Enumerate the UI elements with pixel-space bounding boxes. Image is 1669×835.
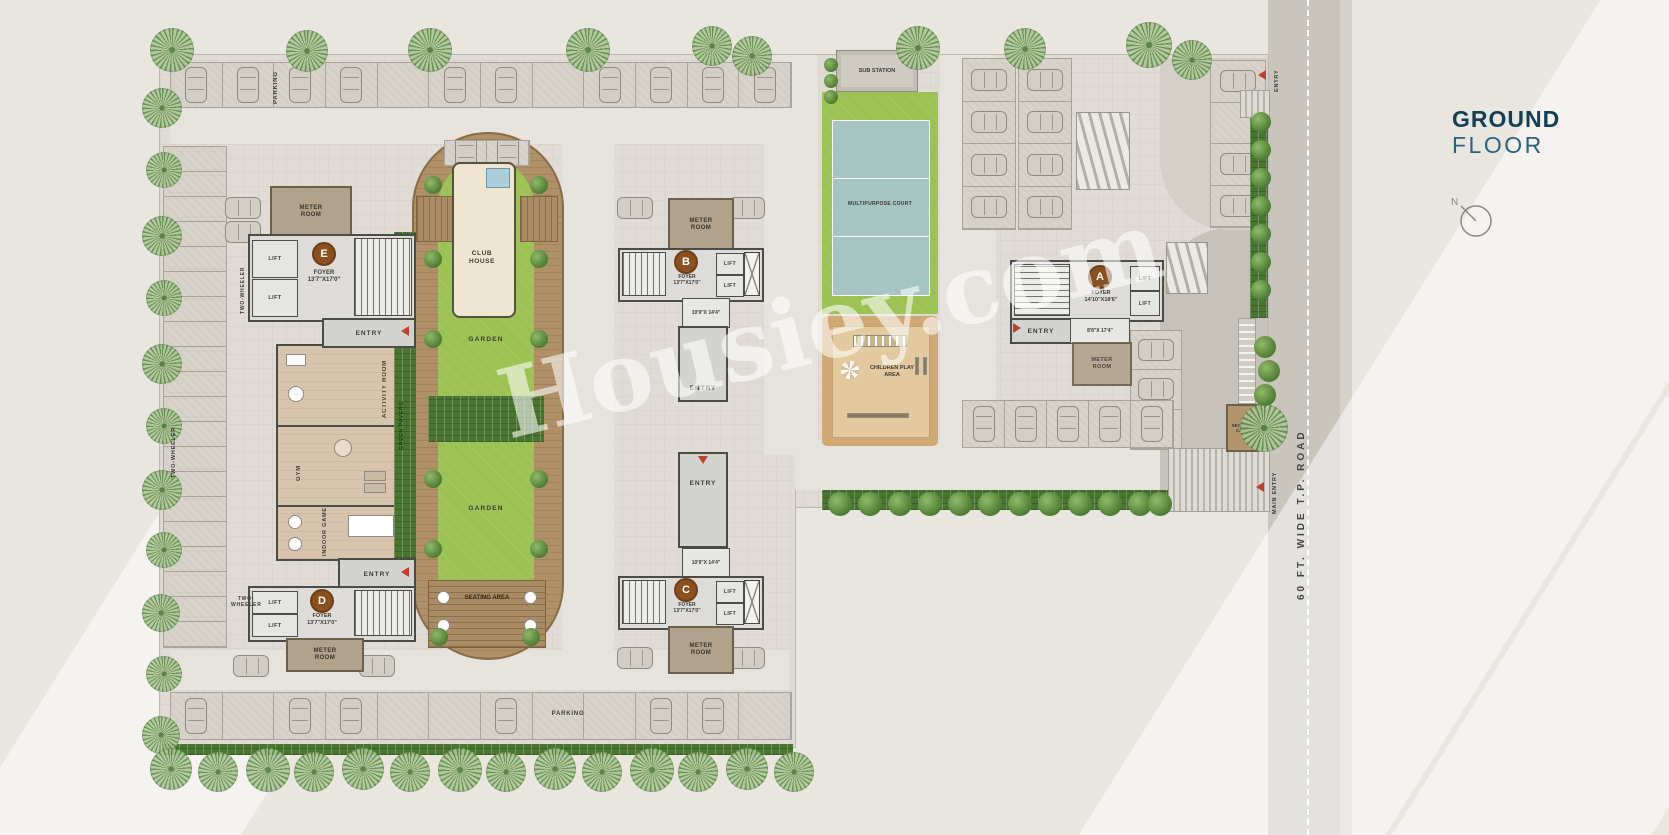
tree-icon xyxy=(1004,28,1046,70)
car-icon xyxy=(444,67,466,103)
tower-c-duct xyxy=(744,580,760,624)
page-title-line1: GROUND xyxy=(1452,106,1560,133)
indoor-game-label: INDOOR GAME xyxy=(322,510,328,556)
club-house: CLUB HOUSE xyxy=(452,162,516,318)
tower-d-stairs xyxy=(354,590,412,636)
parking-stall xyxy=(1089,401,1131,447)
bush-icon xyxy=(424,470,442,488)
garden-label: GARDEN xyxy=(468,336,503,343)
tree-icon xyxy=(408,28,452,72)
bush-icon xyxy=(1098,492,1122,516)
bush-icon xyxy=(824,74,838,88)
ramp-hatch xyxy=(1076,112,1130,190)
ramp-hatch xyxy=(1166,242,1208,294)
tree-icon xyxy=(582,752,622,792)
car-icon xyxy=(702,698,724,734)
car-icon xyxy=(971,111,1007,133)
car-icon xyxy=(971,69,1007,91)
tower-e-foyer-label: FOYER13'7"X17'0" xyxy=(286,270,362,284)
parking-stall xyxy=(1019,144,1071,187)
car-icon xyxy=(1057,406,1079,442)
car-icon xyxy=(1027,69,1063,91)
parking-label-top: PARKING xyxy=(273,64,279,104)
tree-icon xyxy=(774,752,814,792)
bush-icon xyxy=(1068,492,1092,516)
parking-stall xyxy=(963,144,1015,187)
car-icon xyxy=(1027,154,1063,176)
parking-stall xyxy=(1047,401,1089,447)
bush-icon xyxy=(424,540,442,558)
road-165-strip xyxy=(562,108,614,690)
two-wheeler-label: TWO-WHEELER xyxy=(240,250,246,314)
car-icon xyxy=(495,698,517,734)
tower-b-badge: B xyxy=(676,252,696,272)
tree-icon xyxy=(198,752,238,792)
parking-stall xyxy=(1019,102,1071,145)
seating-area-label: SEATING AREA xyxy=(463,595,511,602)
tree-icon xyxy=(142,216,182,256)
bush-icon xyxy=(828,492,852,516)
car-icon xyxy=(289,698,311,734)
parking-stall xyxy=(164,572,226,597)
tower-c-core: C FOYER13'7"X17'0" LIFT LIFT xyxy=(618,576,764,630)
parking-stall xyxy=(164,197,226,222)
tower-c-badge: C xyxy=(676,580,696,600)
parking-stall xyxy=(1131,331,1181,370)
pool-table-icon xyxy=(348,515,394,537)
gym-equipment-icon xyxy=(334,439,352,457)
entry-top-label: ENTRY xyxy=(1274,58,1280,92)
bush-icon xyxy=(1254,336,1276,358)
garden-label: GARDEN xyxy=(468,505,503,512)
bush-icon xyxy=(424,250,442,268)
parking-column xyxy=(1018,58,1072,230)
tower-a-lift-2: LIFT xyxy=(1130,291,1160,316)
parking-stall xyxy=(963,187,1015,230)
parking-row xyxy=(962,400,1174,448)
bush-icon xyxy=(1251,252,1271,272)
tower-d-badge: D xyxy=(312,591,332,611)
tower-a-stairs xyxy=(1014,264,1070,316)
parking-stall xyxy=(326,63,378,107)
tree-icon xyxy=(286,30,328,72)
table-icon xyxy=(437,591,450,604)
tree-icon xyxy=(146,152,182,188)
car-icon xyxy=(1141,406,1163,442)
bush-icon xyxy=(1038,492,1062,516)
tree-icon xyxy=(142,344,182,384)
bush-icon xyxy=(1251,168,1271,188)
bush-icon xyxy=(824,58,838,72)
tree-icon xyxy=(1172,40,1212,80)
car-icon xyxy=(1027,111,1063,133)
tower-e-meter-room: METER ROOM xyxy=(270,186,352,238)
tower-e-badge: E xyxy=(314,244,334,264)
main-entry-apron xyxy=(1168,448,1270,512)
tower-d-meter-room: METER ROOM xyxy=(286,638,364,672)
parking-stall xyxy=(481,63,533,107)
green-pavers-label: GREEN PAVERS xyxy=(399,370,405,450)
parking-stall xyxy=(688,693,740,739)
tree-icon xyxy=(732,36,772,76)
bush-icon xyxy=(1251,196,1271,216)
indoor-game-room: INDOOR GAME xyxy=(276,505,400,561)
ground-floor-site-plan: 60 FT. WIDE T.P. ROAD PARKING DRIVE-WAY … xyxy=(0,0,1669,835)
tree-icon xyxy=(146,532,182,568)
two-wheeler-label: TWO-WHEELER xyxy=(171,398,177,478)
tower-b-lift-1: LIFT xyxy=(716,253,744,275)
bush-icon xyxy=(1008,492,1032,516)
parking-stall xyxy=(429,693,481,739)
activity-room-label: ACTIVITY ROOM xyxy=(382,354,388,418)
tower-a-room: 8'8"X 17'4" xyxy=(1070,318,1130,344)
tower-e-lift-2: LIFT xyxy=(252,279,298,317)
parking-stall xyxy=(636,693,688,739)
tower-a-core: A FOYER14'10"X18'6" LIFT LIFT xyxy=(1010,260,1164,322)
children-play-label: CHILDREN PLAY AREA xyxy=(865,365,919,378)
car-icon xyxy=(340,67,362,103)
main-entry-label: MAIN ENTRY xyxy=(1272,462,1278,514)
club-house-deck xyxy=(416,196,454,242)
bush-icon xyxy=(424,330,442,348)
parking-stall xyxy=(688,63,740,107)
tower-b-core: B FOYER13'7"X17'0" LIFT LIFT xyxy=(618,248,764,302)
parking-label-bottom: PARKING xyxy=(552,711,585,717)
play-equipment-icon xyxy=(915,357,919,375)
parking-stall xyxy=(739,693,791,739)
car-icon xyxy=(650,698,672,734)
car-icon xyxy=(185,698,207,734)
table-icon xyxy=(288,386,304,402)
parking-stall xyxy=(533,63,585,107)
bush-icon xyxy=(824,90,838,104)
tower-b-lift-2: LIFT xyxy=(716,275,744,297)
tower-d-core: LIFT LIFT D FOYER13'7"X17'0" xyxy=(248,586,416,642)
bush-icon xyxy=(530,540,548,558)
parking-row-top xyxy=(170,62,792,108)
compass-north-label: N xyxy=(1451,197,1458,208)
tower-a-meter-room: METER ROOM xyxy=(1072,342,1132,386)
tree-icon xyxy=(246,748,290,792)
bush-icon xyxy=(948,492,972,516)
tree-icon xyxy=(486,752,526,792)
play-equipment-icon xyxy=(923,357,927,375)
tower-c-entry: ENTRY xyxy=(678,452,728,548)
play-equipment-icon xyxy=(853,335,907,347)
parking-stall xyxy=(164,322,226,347)
parking-stall xyxy=(326,693,378,739)
car-icon xyxy=(1027,196,1063,218)
tree-icon xyxy=(390,752,430,792)
tree-icon xyxy=(896,26,940,70)
club-house-label: CLUB HOUSE xyxy=(460,250,504,266)
entry-arrow-icon xyxy=(1013,323,1021,333)
multipurpose-court: MULTIPURPOSE COURT xyxy=(832,120,930,296)
club-house-deck xyxy=(520,196,558,242)
bush-icon xyxy=(424,176,442,194)
main-entry-arrow-icon xyxy=(1256,482,1264,492)
activity-room: ACTIVITY ROOM xyxy=(276,344,398,429)
parking-stall xyxy=(636,63,688,107)
tree-icon xyxy=(146,280,182,316)
tower-e-stairs xyxy=(354,238,412,316)
tower-c-lift-1: LIFT xyxy=(716,581,744,603)
bush-icon xyxy=(530,470,548,488)
bush-icon xyxy=(978,492,1002,516)
car-icon xyxy=(1099,406,1121,442)
car-icon xyxy=(1138,378,1174,400)
bush-icon xyxy=(1254,384,1276,406)
parking-stall xyxy=(1005,401,1047,447)
tower-c-foyer-label: FOYER13'7"X17'0" xyxy=(660,602,714,614)
bush-icon xyxy=(918,492,942,516)
entry-arrow-icon xyxy=(401,567,409,577)
car-icon xyxy=(650,67,672,103)
parking-column xyxy=(962,58,1016,230)
road-16-left-strip xyxy=(764,55,818,455)
tree-icon xyxy=(726,748,768,790)
compass-icon: N xyxy=(1448,192,1498,242)
parking-stall xyxy=(274,693,326,739)
tree-icon xyxy=(294,752,334,792)
bush-icon xyxy=(530,330,548,348)
bush-icon xyxy=(888,492,912,516)
tree-icon xyxy=(142,88,182,128)
car-icon xyxy=(1220,70,1256,92)
tree-icon xyxy=(534,748,576,790)
tree-icon xyxy=(630,748,674,792)
tower-b-room: 10'9"X 14'4" xyxy=(682,298,730,328)
tree-icon xyxy=(566,28,610,72)
tree-icon xyxy=(142,594,180,632)
bush-icon xyxy=(430,628,448,646)
tree-icon xyxy=(692,26,732,66)
parking-row-bottom xyxy=(170,692,792,740)
car-icon xyxy=(237,67,259,103)
tower-a-foyer-label: FOYER14'10"X18'6" xyxy=(1070,290,1132,303)
bush-icon xyxy=(1251,112,1271,132)
seesaw-icon xyxy=(847,413,909,418)
car-icon xyxy=(971,154,1007,176)
table-icon xyxy=(288,515,302,529)
car-icon xyxy=(185,67,207,103)
page-title-line2: FLOOR xyxy=(1452,132,1544,159)
tp-road-label: 60 FT. WIDE T.P. ROAD xyxy=(1296,240,1307,600)
car-icon xyxy=(495,67,517,103)
tower-c-meter-room: METER ROOM xyxy=(668,626,734,674)
tower-c-lift-2: LIFT xyxy=(716,603,744,625)
parking-stall xyxy=(378,693,430,739)
tower-b-entry: ENTRY xyxy=(678,326,728,402)
tower-a-lift-1: LIFT xyxy=(1130,266,1160,291)
parking-stall xyxy=(481,693,533,739)
parking-stall xyxy=(1131,401,1173,447)
car-icon xyxy=(599,67,621,103)
tree-icon xyxy=(438,748,482,792)
tower-a-badge: A xyxy=(1090,267,1110,287)
car-icon xyxy=(973,406,995,442)
bush-icon xyxy=(1251,280,1271,300)
tree-icon xyxy=(678,752,718,792)
car-icon xyxy=(971,196,1007,218)
multipurpose-court-label: MULTIPURPOSE COURT xyxy=(835,201,925,207)
tower-b-foyer-label: FOYER13'7"X17'0" xyxy=(660,274,714,286)
gym-equipment-icon xyxy=(364,471,386,481)
entry-arrow-icon xyxy=(1258,70,1266,80)
children-play-sand: CHILDREN PLAY AREA xyxy=(832,326,930,438)
gym-equipment-icon xyxy=(364,483,386,493)
bush-icon xyxy=(858,492,882,516)
car-icon xyxy=(340,698,362,734)
table-icon xyxy=(286,354,306,366)
bush-icon xyxy=(1251,140,1271,160)
parking-stall xyxy=(963,59,1015,102)
car-icon xyxy=(289,67,311,103)
tower-b-meter-room: METER ROOM xyxy=(668,198,734,252)
tower-d-foyer-label: FOYER13'7"X17'0" xyxy=(284,613,360,626)
gym-label: GYM xyxy=(296,451,302,481)
bush-icon xyxy=(1258,360,1280,382)
car-icon xyxy=(1138,339,1174,361)
walkway-steps xyxy=(1238,318,1256,404)
tree-icon xyxy=(146,656,182,692)
car-icon xyxy=(1015,406,1037,442)
two-wheeler-label: TWO-WHEELER xyxy=(231,596,261,608)
parking-stall xyxy=(963,102,1015,145)
parking-stall xyxy=(1019,187,1071,230)
parking-stall xyxy=(584,693,636,739)
parking-stall xyxy=(223,63,275,107)
plunge-pool xyxy=(486,168,510,188)
tower-e-core: LIFT LIFT E FOYER13'7"X17'0" xyxy=(248,234,416,322)
entry-arrow-icon xyxy=(401,326,409,336)
tree-icon xyxy=(150,28,194,72)
umbrella-icon xyxy=(841,361,859,379)
tree-icon xyxy=(1240,404,1288,452)
tree-icon xyxy=(342,748,384,790)
tree-icon xyxy=(1126,22,1172,68)
parking-stall xyxy=(223,693,275,739)
gym: GYM xyxy=(276,425,398,509)
parking-stall xyxy=(963,401,1005,447)
table-icon xyxy=(524,591,537,604)
bush-icon xyxy=(522,628,540,646)
bush-icon xyxy=(530,250,548,268)
car-icon xyxy=(702,67,724,103)
bush-icon xyxy=(530,176,548,194)
entry-arrow-icon xyxy=(698,456,708,464)
garden-hedge-band xyxy=(428,396,544,442)
tree-icon xyxy=(150,748,192,790)
bush-icon xyxy=(1251,224,1271,244)
tower-c-room: 10'9"X 14'4" xyxy=(682,548,730,578)
bush-icon xyxy=(1148,492,1172,516)
tower-b-duct xyxy=(744,252,760,296)
table-icon xyxy=(288,537,302,551)
